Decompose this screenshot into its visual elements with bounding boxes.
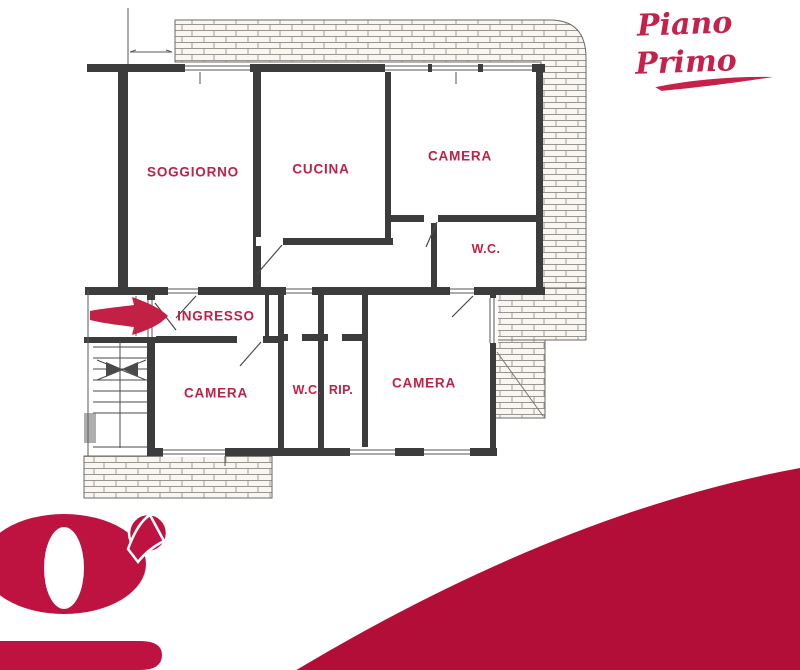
logo-g-glyph — [0, 514, 167, 670]
exterior-brick-areas — [84, 20, 586, 498]
room-label-cucina: CUCINA — [292, 162, 349, 177]
staircase — [84, 340, 147, 448]
room-label-camera-est: CAMERA — [392, 376, 456, 391]
agency-logo — [0, 498, 210, 670]
survey-lines — [88, 8, 172, 456]
floor-title-text: Piano Primo — [635, 5, 738, 81]
floor-title: Piano Primo — [582, 2, 790, 94]
floorplan-page: SOGGIORNO CUCINA CAMERA W.C. INGRESSO CA… — [0, 0, 800, 670]
walls — [84, 64, 545, 456]
room-label-camera-nord: CAMERA — [428, 149, 492, 164]
brick-top-right-strip — [175, 20, 586, 288]
entrance-arrow-icon — [90, 297, 168, 335]
room-label-ripostiglio: RIP. — [329, 383, 353, 397]
room-label-wc-sud: W.C. — [293, 383, 322, 397]
room-label-camera-ovest: CAMERA — [184, 386, 248, 401]
room-label-wc-nord: W.C. — [472, 242, 501, 256]
wall-openings — [145, 63, 532, 466]
room-label-soggiorno: SOGGIORNO — [147, 165, 239, 180]
room-label-ingresso: INGRESSO — [177, 309, 255, 324]
brick-right-block — [495, 288, 586, 340]
brick-right-lower-strip — [495, 340, 545, 418]
